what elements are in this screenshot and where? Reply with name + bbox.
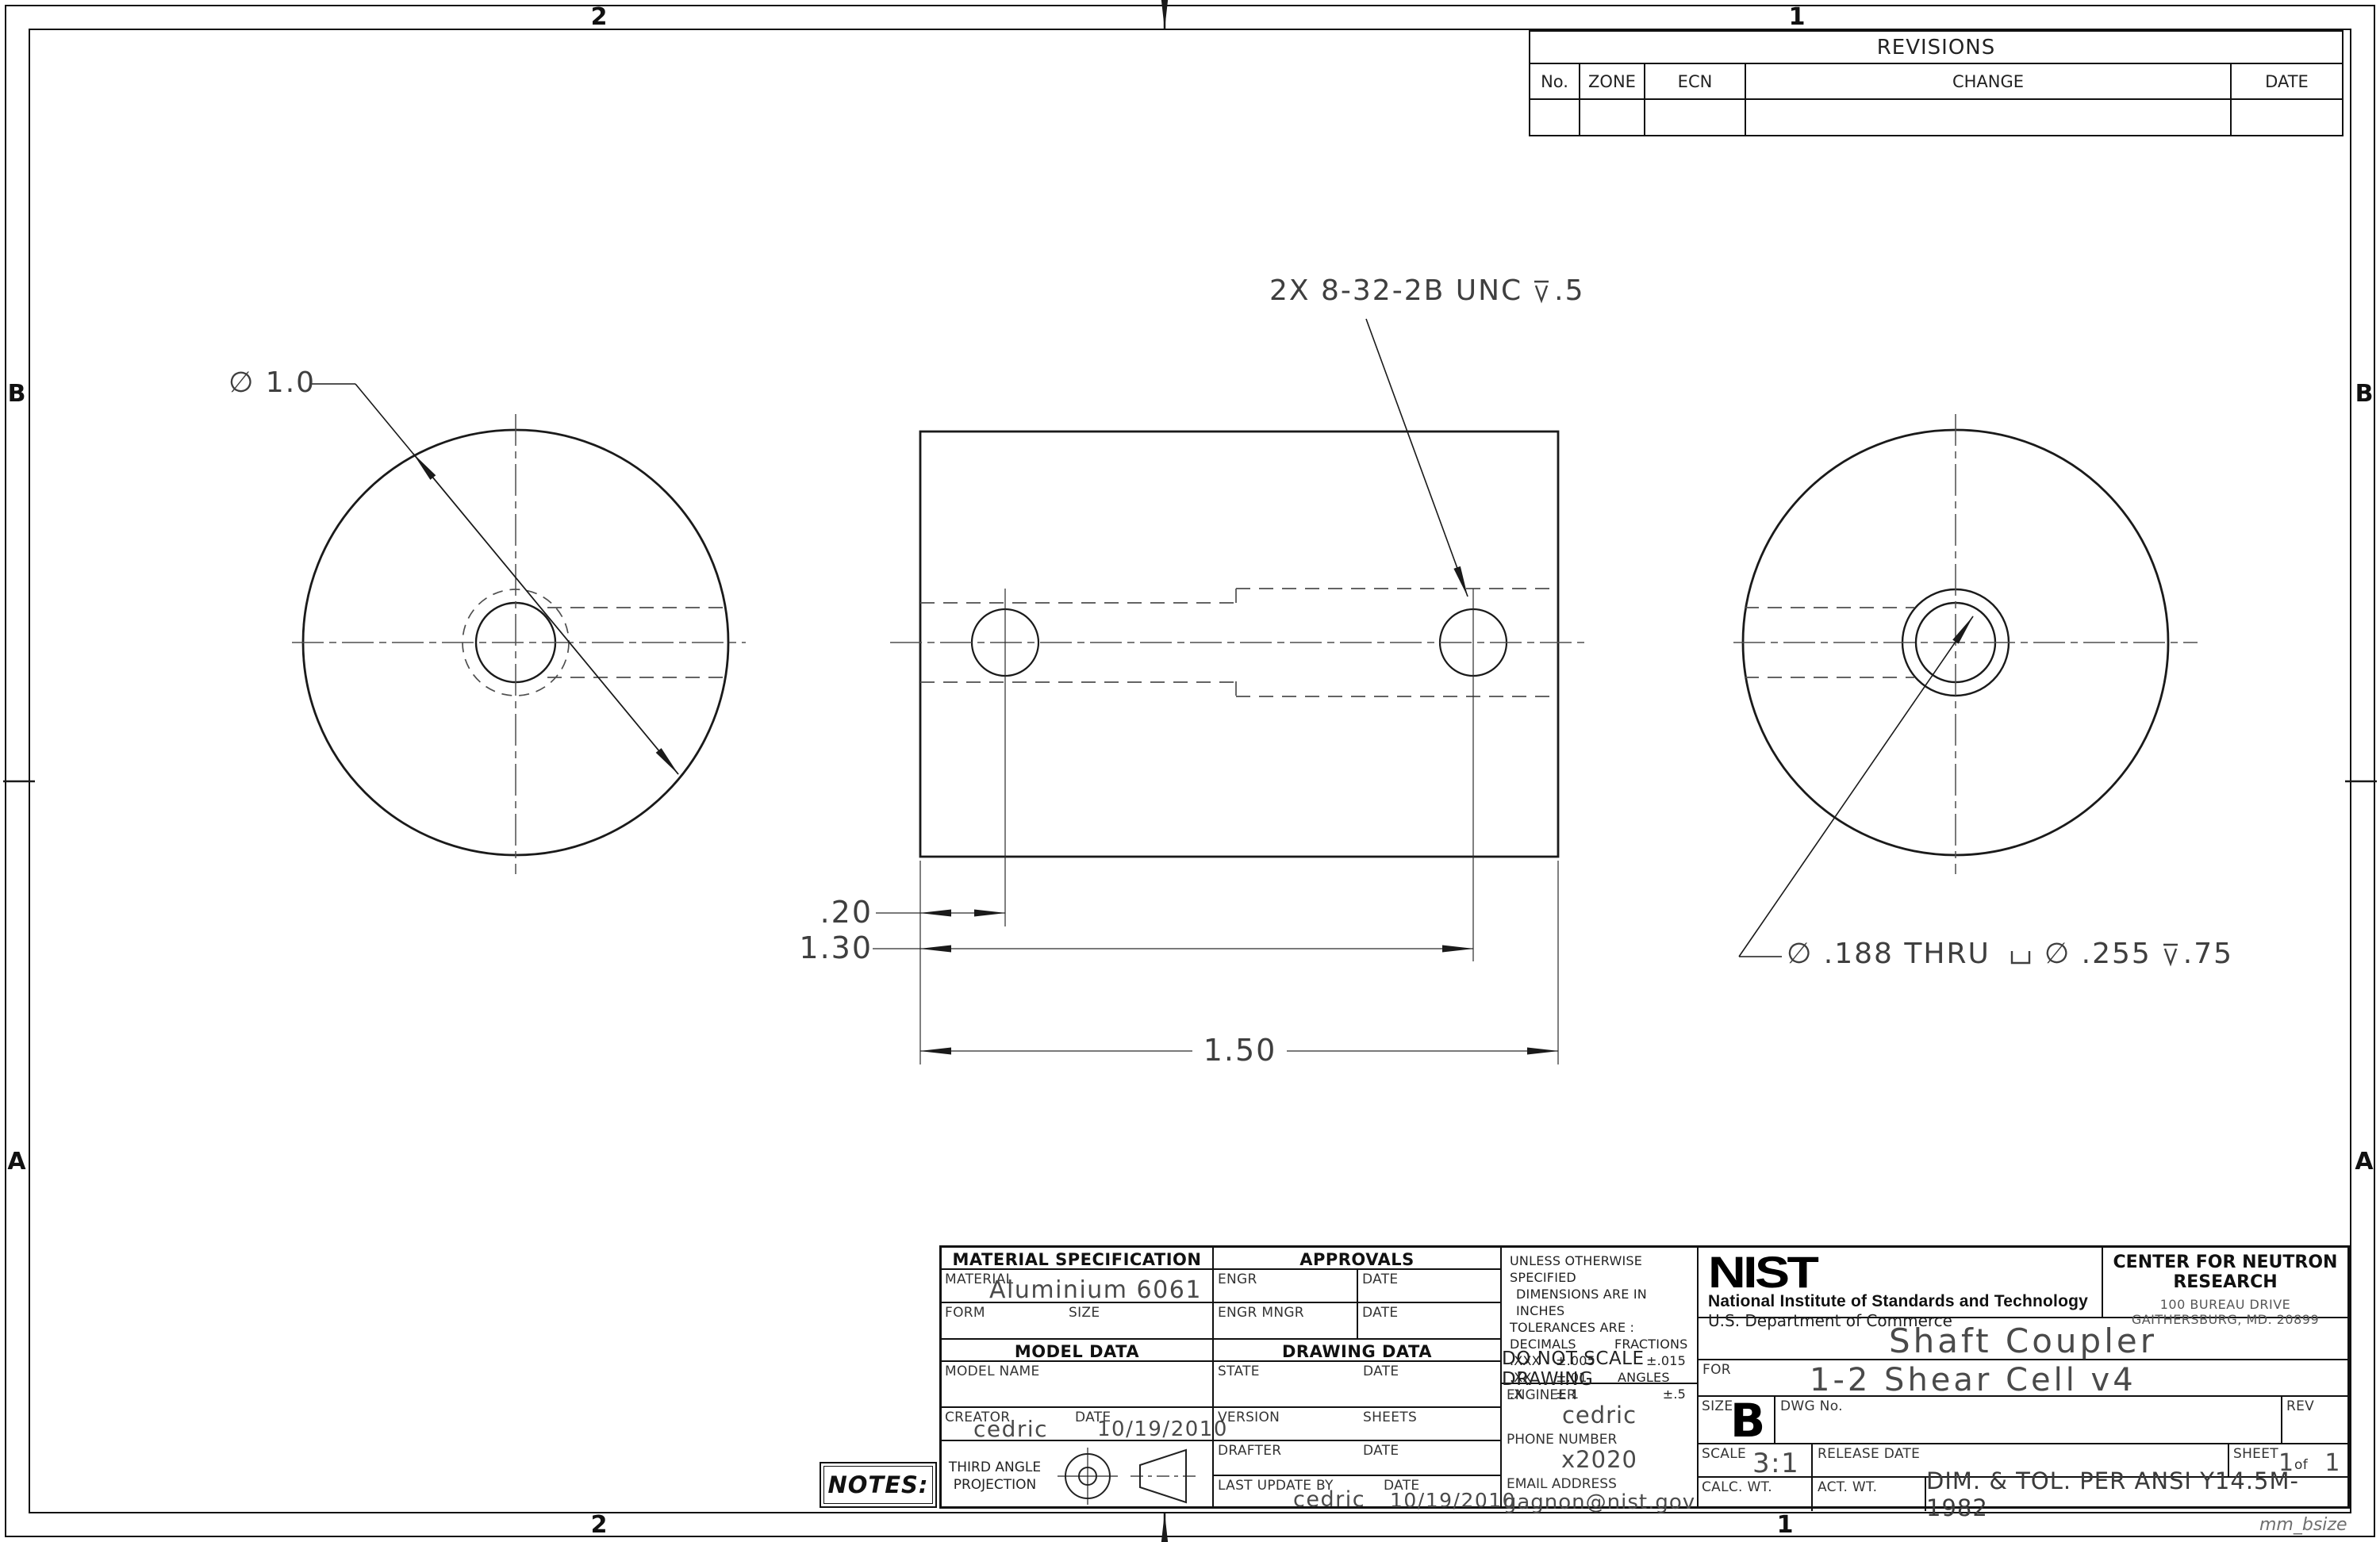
rev-cell: REV: [2282, 1397, 2347, 1443]
email-value: gagnon@nist.gov: [1502, 1490, 1697, 1514]
projection-cell: THIRD ANGLE PROJECTION: [942, 1441, 1212, 1511]
depth-icon: [1532, 278, 1551, 305]
model-data-header: MODEL DATA: [942, 1340, 1212, 1362]
engr-mngr-date-label: DATE: [1362, 1305, 1398, 1321]
thru-hole-text: ∅ .188 THRU: [1787, 938, 1990, 970]
title-block-material-column: MATERIAL SPECIFICATION MATERIAL Aluminiu…: [942, 1248, 1214, 1506]
engr-date-label: DATE: [1362, 1272, 1398, 1287]
size-value: B: [1730, 1394, 1765, 1448]
phone-label: PHONE NUMBER: [1502, 1429, 1697, 1448]
drawing-title: Shaft Coupler: [1699, 1318, 2347, 1360]
projection-label: THIRD ANGLE PROJECTION: [948, 1459, 1042, 1494]
extension-lines: [920, 589, 1558, 1064]
revisions-col-ecn: ECN: [1645, 64, 1746, 98]
sheets-label: SHEETS: [1363, 1410, 1417, 1425]
tap-hole-callout: 2X 8-32-2B UNC .5: [1269, 274, 1585, 307]
tap-depth-text: .5: [1554, 274, 1584, 307]
engr-mngr-label: ENGR MNGR: [1218, 1305, 1304, 1321]
dim-150: 1.50: [1196, 1033, 1284, 1068]
title-block-tolerance-column: UNLESS OTHERWISE SPECIFIED DIMENSIONS AR…: [1502, 1248, 1699, 1506]
model-name-label: MODEL NAME: [945, 1364, 1040, 1379]
calc-wt-label: CALC. WT.: [1702, 1479, 1772, 1495]
counterbore-icon: [2008, 949, 2033, 966]
tap-callout-text: 2X 8-32-2B UNC: [1269, 274, 1522, 307]
od-diameter-text: ∅ 1.0: [228, 366, 316, 399]
state-cell: STATE DATE: [1214, 1362, 1500, 1408]
centerlines: [292, 414, 746, 874]
material-cell: MATERIAL Aluminium 6061: [942, 1270, 1212, 1303]
revisions-col-change: CHANGE: [1746, 64, 2232, 98]
scale-label: SCALE: [1702, 1446, 1746, 1462]
hole-callout-leader: [1739, 616, 1973, 957]
revisions-table: REVISIONS No. ZONE ECN CHANGE DATE: [1529, 30, 2344, 136]
model-name-cell: MODEL NAME: [942, 1362, 1212, 1408]
state-date-label: DATE: [1363, 1364, 1399, 1379]
revisions-col-zone: ZONE: [1580, 64, 1645, 98]
tap-callout-leader: [1366, 319, 1468, 596]
version-label: VERSION: [1218, 1410, 1280, 1425]
release-date-label: RELEASE DATE: [1818, 1446, 1920, 1462]
size-cell: SIZE B: [1699, 1397, 1775, 1443]
tolerance-line3: TOLERANCES ARE :: [1510, 1319, 1691, 1336]
od-diameter-callout: ∅ 1.0: [228, 366, 316, 399]
engineer-label: ENGINEER: [1502, 1384, 1697, 1403]
material-value: Aluminium 6061: [989, 1276, 1202, 1304]
revisions-empty-row: [1530, 100, 2342, 135]
do-not-scale-label: DO NOT SCALE DRAWING: [1502, 1355, 1697, 1384]
material-spec-header: MATERIAL SPECIFICATION: [942, 1248, 1212, 1270]
standard-note: DIM. & TOL. PER ANSI Y14.5M-1982: [1926, 1467, 2347, 1521]
cbore-depth-text: .75: [2183, 938, 2233, 970]
side-view: [873, 319, 1588, 1064]
drafter-label: DRAFTER: [1218, 1443, 1281, 1459]
rev-label: REV: [2286, 1398, 2314, 1414]
drawing-data-header: DRAWING DATA: [1214, 1340, 1500, 1362]
contact-block: ENGINEER cedric PHONE NUMBER x2020 EMAIL…: [1502, 1384, 1697, 1511]
creator-date-value: 10/19/2010: [1097, 1417, 1228, 1441]
right-end-view: [1733, 414, 2198, 957]
tolerance-line1: UNLESS OTHERWISE SPECIFIED: [1510, 1252, 1691, 1286]
for-label: FOR: [1702, 1362, 1731, 1378]
depth-icon: [2161, 941, 2180, 968]
act-wt-cell: ACT. WT.: [1813, 1478, 1926, 1511]
notes-label: NOTES:: [823, 1466, 933, 1504]
last-update-value: cedric: [1293, 1487, 1365, 1512]
title-block: MATERIAL SPECIFICATION MATERIAL Aluminiu…: [939, 1245, 2350, 1509]
diameter-leader: [309, 384, 678, 774]
engr-label: ENGR: [1218, 1272, 1257, 1287]
size-field-label: SIZE: [1702, 1398, 1733, 1414]
for-cell: FOR 1-2 Shear Cell v4: [1699, 1360, 2347, 1397]
act-wt-label: ACT. WT.: [1818, 1479, 1877, 1495]
revisions-col-date: DATE: [2232, 64, 2342, 98]
standard-cell: DIM. & TOL. PER ANSI Y14.5M-1982: [1926, 1478, 2347, 1511]
centerlines: [1733, 414, 2198, 874]
drawing-title-cell: Shaft Coupler: [1699, 1318, 2347, 1360]
revisions-title: REVISIONS: [1530, 32, 2342, 64]
thru-hole-callout: ∅ .188 THRU ∅ .255 .75: [1787, 938, 2233, 970]
left-end-view: [292, 384, 746, 874]
form-size-cell: FORM SIZE: [942, 1303, 1212, 1340]
revisions-col-no: No.: [1530, 64, 1580, 98]
drafter-date-label: DATE: [1363, 1443, 1399, 1459]
calc-wt-cell: CALC. WT.: [1699, 1478, 1813, 1511]
dim-130: 1.30: [793, 930, 873, 965]
scale-value: 3:1: [1752, 1448, 1799, 1479]
size-label: SIZE: [1069, 1305, 1100, 1321]
title-block-main-column: NIST National Institute of Standards and…: [1699, 1248, 2347, 1506]
engineer-value: cedric: [1502, 1402, 1697, 1429]
dim-020: .20: [797, 895, 873, 930]
engr-mngr-cell: ENGR MNGR DATE: [1214, 1303, 1500, 1340]
cbore-diameter-text: ∅ .255: [2044, 938, 2152, 970]
facility-addr1: 100 BUREAU DRIVE: [2103, 1297, 2347, 1312]
creator-cell: CREATOR cedric DATE 10/19/2010: [942, 1408, 1212, 1441]
scale-cell: SCALE 3:1: [1699, 1444, 1813, 1476]
tolerance-line2: DIMENSIONS ARE IN INCHES: [1510, 1286, 1691, 1319]
engr-cell: ENGR DATE: [1214, 1270, 1500, 1303]
version-cell: VERSION SHEETS: [1214, 1408, 1500, 1441]
third-angle-projection-icon: [1046, 1443, 1205, 1509]
dimension-lines: [873, 913, 1558, 1051]
notes-box: NOTES:: [820, 1462, 937, 1508]
creator-value: cedric: [973, 1416, 1048, 1442]
for-value: 1-2 Shear Cell v4: [1810, 1362, 2136, 1398]
dwg-no-cell: DWG No.: [1775, 1397, 2282, 1443]
email-label: EMAIL ADDRESS: [1502, 1473, 1697, 1492]
nist-logo: NIST: [1708, 1252, 2172, 1292]
revisions-header-row: No. ZONE ECN CHANGE DATE: [1530, 64, 2342, 100]
dwg-no-label: DWG No.: [1780, 1398, 1843, 1414]
drafter-cell: DRAFTER DATE: [1214, 1441, 1500, 1476]
tolerance-block: UNLESS OTHERWISE SPECIFIED DIMENSIONS AR…: [1502, 1248, 1697, 1355]
state-label: STATE: [1218, 1364, 1260, 1379]
agency-cell: NIST National Institute of Standards and…: [1699, 1248, 2103, 1317]
form-label: FORM: [945, 1305, 985, 1321]
drawing-sheet: 2 1 2 1 B A B A mm_bsize: [0, 0, 2380, 1542]
phone-value: x2020: [1502, 1446, 1697, 1473]
sheet-label: SHEET: [2233, 1446, 2278, 1462]
last-update-date-value: 10/19/2010: [1390, 1489, 1516, 1512]
approvals-header: APPROVALS: [1214, 1248, 1500, 1270]
title-block-approvals-column: APPROVALS ENGR DATE ENGR MNGR DATE DRAWI…: [1214, 1248, 1502, 1506]
last-update-cell: LAST UPDATE BY cedric DATE 10/19/2010: [1214, 1476, 1500, 1511]
